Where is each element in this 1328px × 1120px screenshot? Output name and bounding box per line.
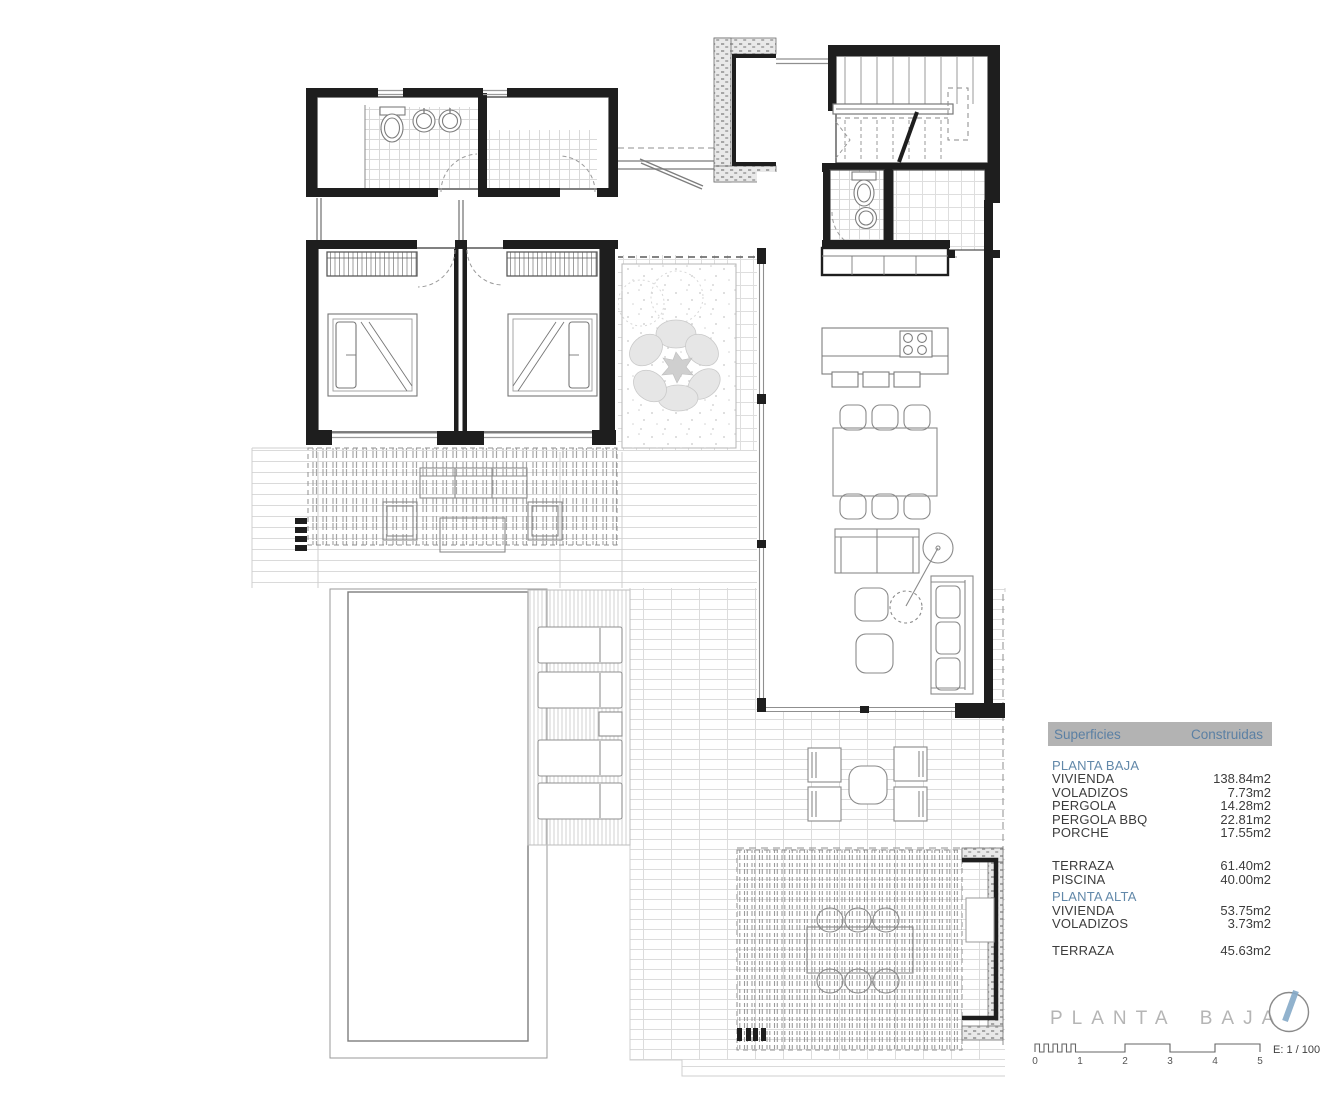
- area-label: VIVIENDA: [1052, 904, 1114, 917]
- area-label: PISCINA: [1052, 873, 1105, 886]
- area-value: 22.81m2: [1220, 813, 1271, 826]
- bed: [328, 314, 417, 396]
- patio-chair: [808, 787, 841, 821]
- table-group-row: PLANTA ALTA: [1052, 890, 1271, 903]
- scale-label: E: 1 / 100: [1273, 1044, 1320, 1056]
- stool: [894, 372, 920, 387]
- table-row: PORCHE 17.55m2: [1052, 826, 1271, 839]
- bbq-sink: [966, 898, 994, 942]
- hallway: [317, 198, 463, 240]
- toilet: [852, 172, 876, 206]
- bathrooms-block: [306, 88, 618, 198]
- areas-col-construidas: Construidas: [1191, 727, 1263, 742]
- entry-path: [618, 148, 716, 189]
- areas-table-header: Superficies Construidas: [1048, 722, 1272, 746]
- scale-tick: 1: [1077, 1056, 1083, 1067]
- patio-table: [849, 766, 887, 804]
- pool: [330, 589, 547, 1058]
- table-row: VIVIENDA 53.75m2: [1052, 904, 1271, 917]
- sun-lounger: [538, 627, 622, 663]
- area-value: 7.73m2: [1228, 786, 1271, 799]
- scale-tick: 4: [1212, 1056, 1218, 1067]
- areas-col-superficies: Superficies: [1054, 727, 1121, 742]
- sun-deck: [528, 590, 630, 845]
- page-title: PLANTA BAJA: [1050, 1008, 1283, 1030]
- lounger-side-table: [599, 712, 622, 736]
- courtyard: [616, 255, 758, 450]
- area-value: 45.63m2: [1220, 944, 1271, 957]
- kitchen-counter: [822, 248, 948, 275]
- table-group-row: PLANTA BAJA: [1052, 759, 1271, 772]
- area-label: PLANTA ALTA: [1052, 890, 1137, 903]
- stool: [832, 372, 858, 387]
- sun-lounger: [538, 740, 622, 776]
- scale-tick: 0: [1032, 1056, 1038, 1067]
- area-value: 53.75m2: [1220, 904, 1271, 917]
- area-value: 3.73m2: [1228, 917, 1271, 930]
- area-label: VIVIENDA: [1052, 772, 1114, 785]
- wardrobe: [327, 252, 417, 276]
- area-label: TERRAZA: [1052, 859, 1114, 872]
- patio-chair: [894, 747, 927, 781]
- stool: [863, 372, 889, 387]
- table-row: PISCINA 40.00m2: [1052, 873, 1271, 886]
- entrance-porch: [714, 38, 828, 182]
- table-row: PERGOLA 14.28m2: [1052, 799, 1271, 812]
- area-value: 17.55m2: [1220, 826, 1271, 839]
- scale-tick: 3: [1167, 1056, 1173, 1067]
- sun-lounger: [538, 783, 622, 819]
- table-row: TERRAZA 45.63m2: [1052, 944, 1271, 957]
- table-row: PERGOLA BBQ 22.81m2: [1052, 813, 1271, 826]
- area-label: VOLADIZOS: [1052, 786, 1128, 799]
- bedrooms-block: [306, 240, 618, 445]
- area-value: 138.84m2: [1213, 772, 1271, 785]
- scale-tick: 5: [1257, 1056, 1263, 1067]
- sun-lounger: [538, 672, 622, 708]
- pergola-lounge: [295, 448, 617, 552]
- scale-tick: 2: [1122, 1056, 1128, 1067]
- area-value: 40.00m2: [1220, 873, 1271, 886]
- area-value: 61.40m2: [1220, 859, 1271, 872]
- table-row-spacer: [1052, 839, 1271, 859]
- area-label: PLANTA BAJA: [1052, 759, 1139, 772]
- areas-table-body: PLANTA BAJA VIVIENDA 138.84m2 VOLADIZOS …: [1048, 746, 1272, 958]
- patio-chair: [894, 787, 927, 821]
- table-row: VIVIENDA 138.84m2: [1052, 772, 1271, 785]
- staircase: [822, 45, 1000, 170]
- table-row: VOLADIZOS 7.73m2: [1052, 786, 1271, 799]
- area-value: 14.28m2: [1220, 799, 1271, 812]
- table-row: TERRAZA 61.40m2: [1052, 859, 1271, 872]
- bed: [508, 314, 597, 396]
- area-label: PERGOLA: [1052, 799, 1116, 812]
- sink: [856, 208, 877, 229]
- gate-leaf: [640, 159, 703, 189]
- area-label: VOLADIZOS: [1052, 917, 1128, 930]
- table-row: VOLADIZOS 3.73m2: [1052, 917, 1271, 930]
- dining-table: [833, 428, 937, 496]
- areas-table: Superficies Construidas PLANTA BAJA VIVI…: [1048, 722, 1272, 958]
- area-label: PERGOLA BBQ: [1052, 813, 1147, 826]
- area-label: PORCHE: [1052, 826, 1109, 839]
- area-label: TERRAZA: [1052, 944, 1114, 957]
- wardrobe: [507, 252, 597, 276]
- floor-plan-sheet: Superficies Construidas PLANTA BAJA VIVI…: [0, 0, 1328, 1120]
- patio-chair: [808, 748, 841, 782]
- scale-bar: 0 1 2 3 4 5 E: 1 / 100: [1030, 1036, 1328, 1068]
- north-compass-icon: [1265, 988, 1313, 1036]
- table-row-spacer: [1052, 930, 1271, 944]
